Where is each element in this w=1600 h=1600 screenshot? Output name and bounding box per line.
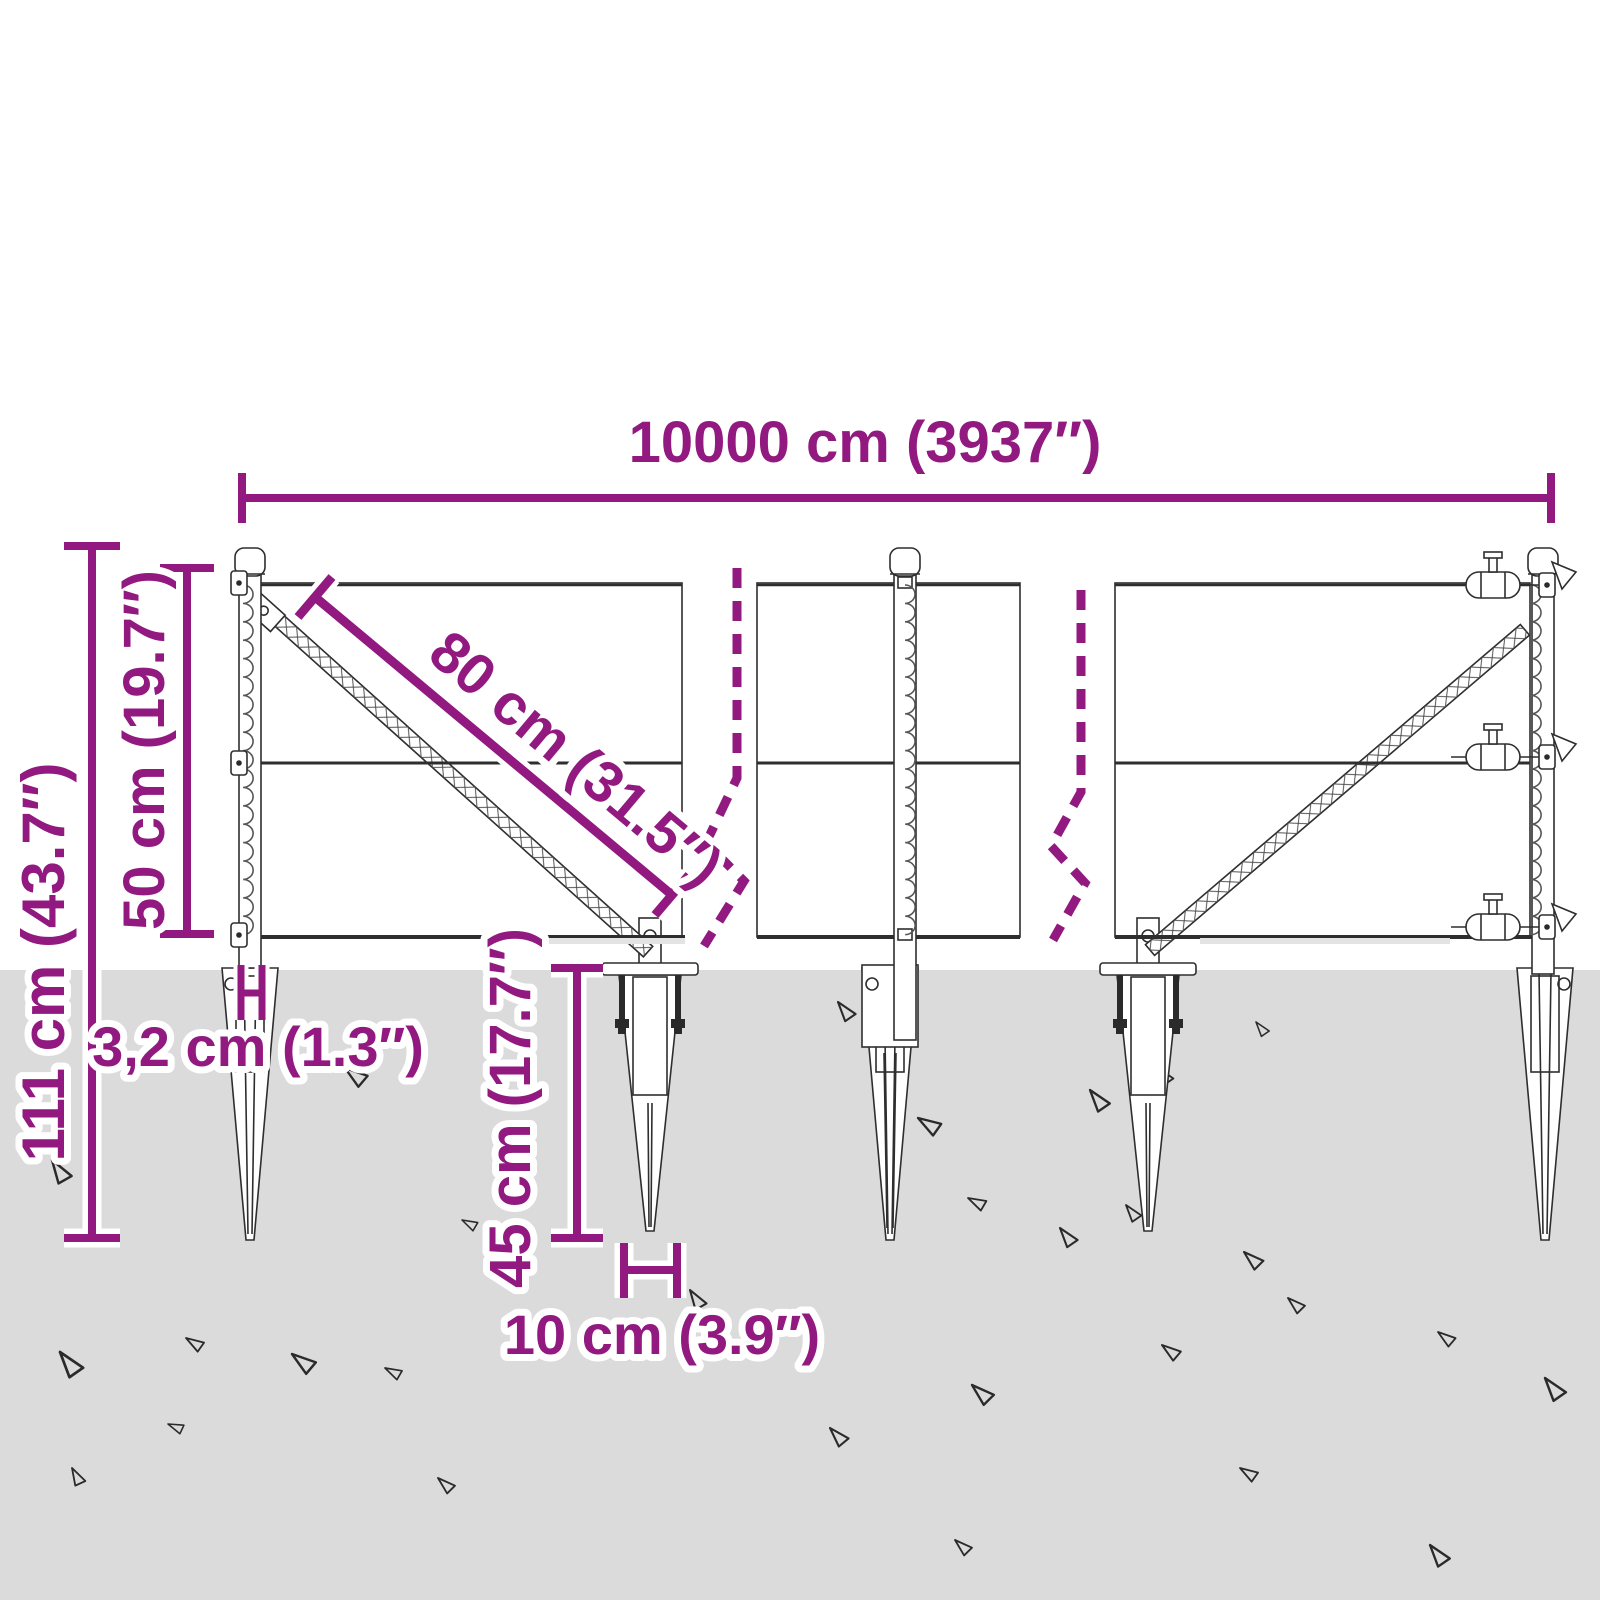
label-total-width: 10000 cm (3937″) <box>629 410 1102 475</box>
fence-post-right <box>1451 548 1576 974</box>
fence-post-left <box>231 548 265 968</box>
diagonal-brace-right <box>1145 624 1529 955</box>
label-post-width: 3,2 cm (1.3″) <box>92 1015 424 1078</box>
label-spike-depth: 45 cm (17.7″) <box>478 928 543 1288</box>
wire-tensioner-top <box>1451 552 1539 598</box>
dimension-brace-length <box>298 577 689 915</box>
dimension-total-width <box>242 473 1551 523</box>
dimension-diagram: 10000 cm (3937″) 111 cm (43.7″) 50 cm (1… <box>0 0 1600 1600</box>
label-spike-top-width: 10 cm (3.9″) <box>504 1303 820 1366</box>
diagram-svg: 10000 cm (3937″) 111 cm (43.7″) 50 cm (1… <box>0 0 1600 1600</box>
wire-tensioner-bottom <box>1451 894 1539 940</box>
break-line-right <box>1051 590 1085 940</box>
fence-post-middle <box>890 548 920 1040</box>
break-line-left <box>704 568 744 946</box>
label-mesh-height: 50 cm (19.7″) <box>112 570 177 930</box>
label-total-height: 111 cm (43.7″) <box>10 762 77 1161</box>
mesh-panel-2 <box>757 583 1020 937</box>
label-brace-length: 80 cm (31.5″) <box>417 618 734 899</box>
